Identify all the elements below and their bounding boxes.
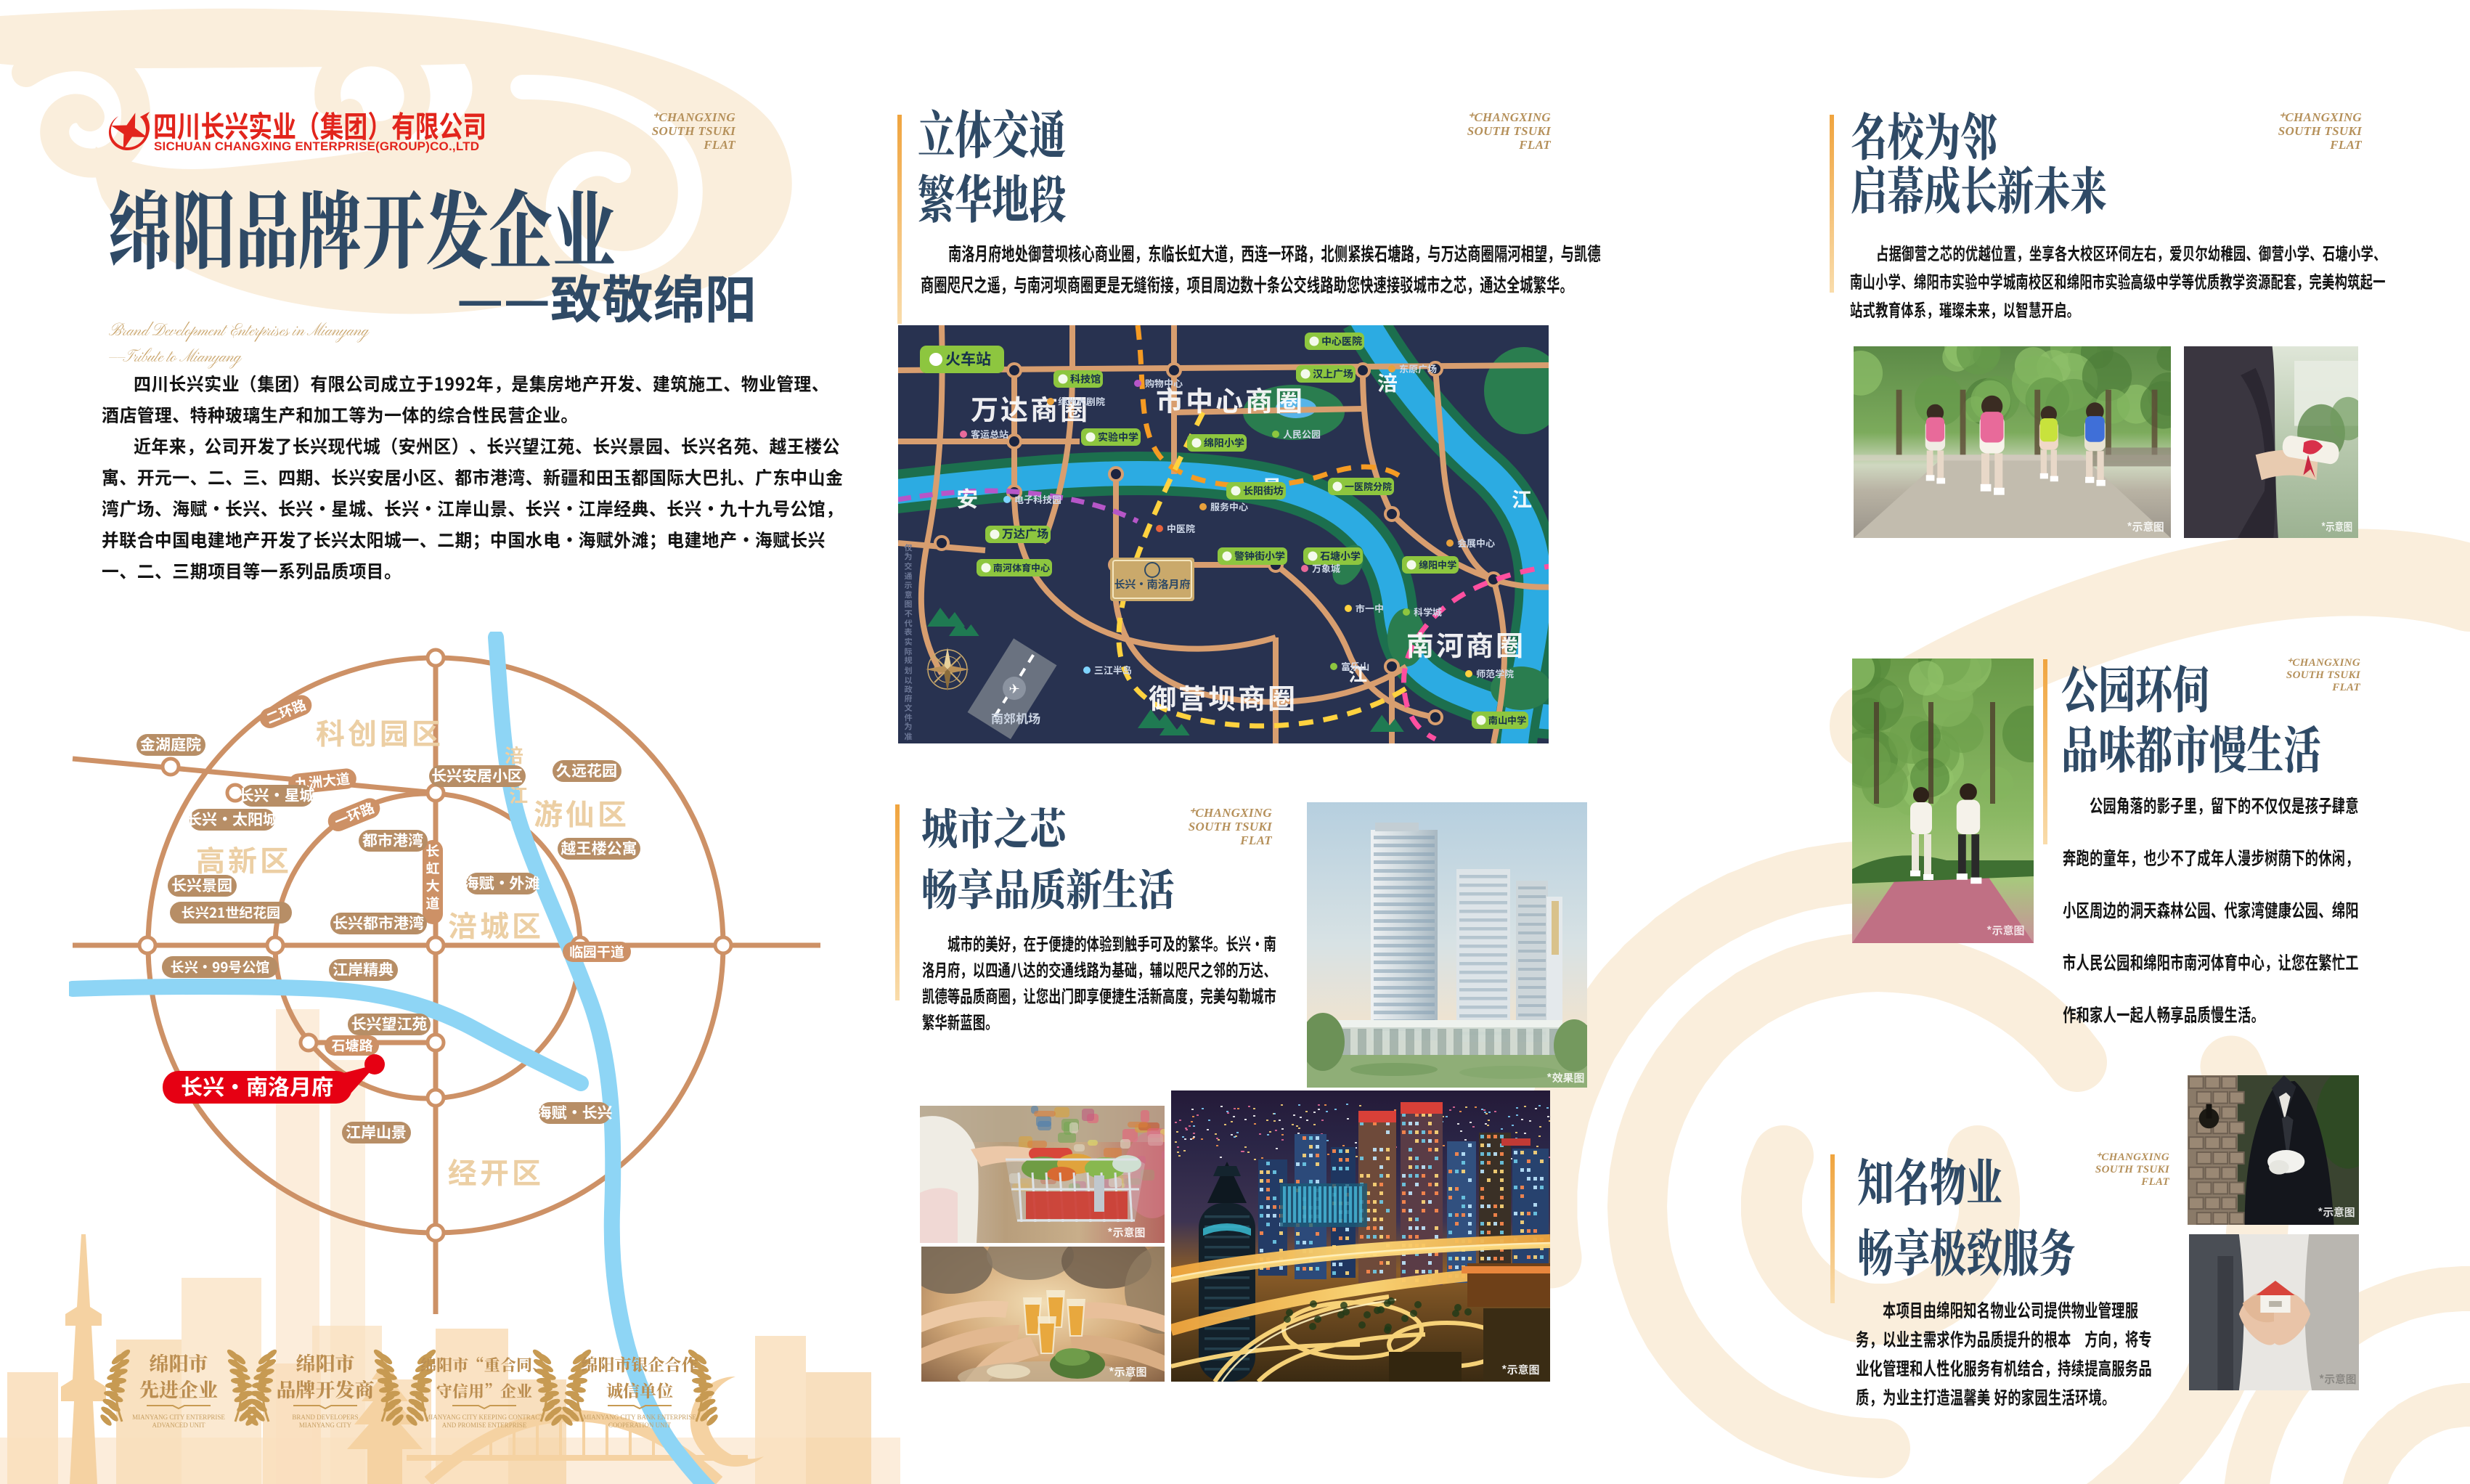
svg-text:BRAND DEVELOPERS: BRAND DEVELOPERS <box>292 1414 358 1421</box>
svg-text:绵阳市: 绵阳市 <box>296 1348 355 1377</box>
svg-text:AND PROMISE ENTERPRISE: AND PROMISE ENTERPRISE <box>442 1422 527 1429</box>
svg-text:MIANYANG CITY BANK ENTERPRISE: MIANYANG CITY BANK ENTERPRISE <box>583 1414 696 1421</box>
svg-text:绵阳市: 绵阳市 <box>150 1348 208 1377</box>
svg-text:诚信单位: 诚信单位 <box>606 1378 673 1402</box>
svg-text:绵阳市银企合作: 绵阳市银企合作 <box>582 1352 699 1376</box>
svg-text:绵阳市“重合同、: 绵阳市“重合同、 <box>420 1353 548 1376</box>
svg-text:MIANYANG CITY: MIANYANG CITY <box>299 1422 352 1429</box>
svg-text:MIANYANG CITY ENTERPRISE: MIANYANG CITY ENTERPRISE <box>132 1414 225 1421</box>
svg-text:ADVANCED UNIT: ADVANCED UNIT <box>152 1422 205 1429</box>
svg-text:先进企业: 先进企业 <box>139 1374 218 1403</box>
svg-text:守信用”企业: 守信用”企业 <box>436 1379 532 1402</box>
svg-text:品牌开发商: 品牌开发商 <box>277 1374 375 1403</box>
svg-text:MIANYANG CITY KEEPING CONTRACT: MIANYANG CITY KEEPING CONTRACT <box>425 1414 544 1421</box>
svg-text:COOPERATION UNIT: COOPERATION UNIT <box>608 1422 672 1429</box>
